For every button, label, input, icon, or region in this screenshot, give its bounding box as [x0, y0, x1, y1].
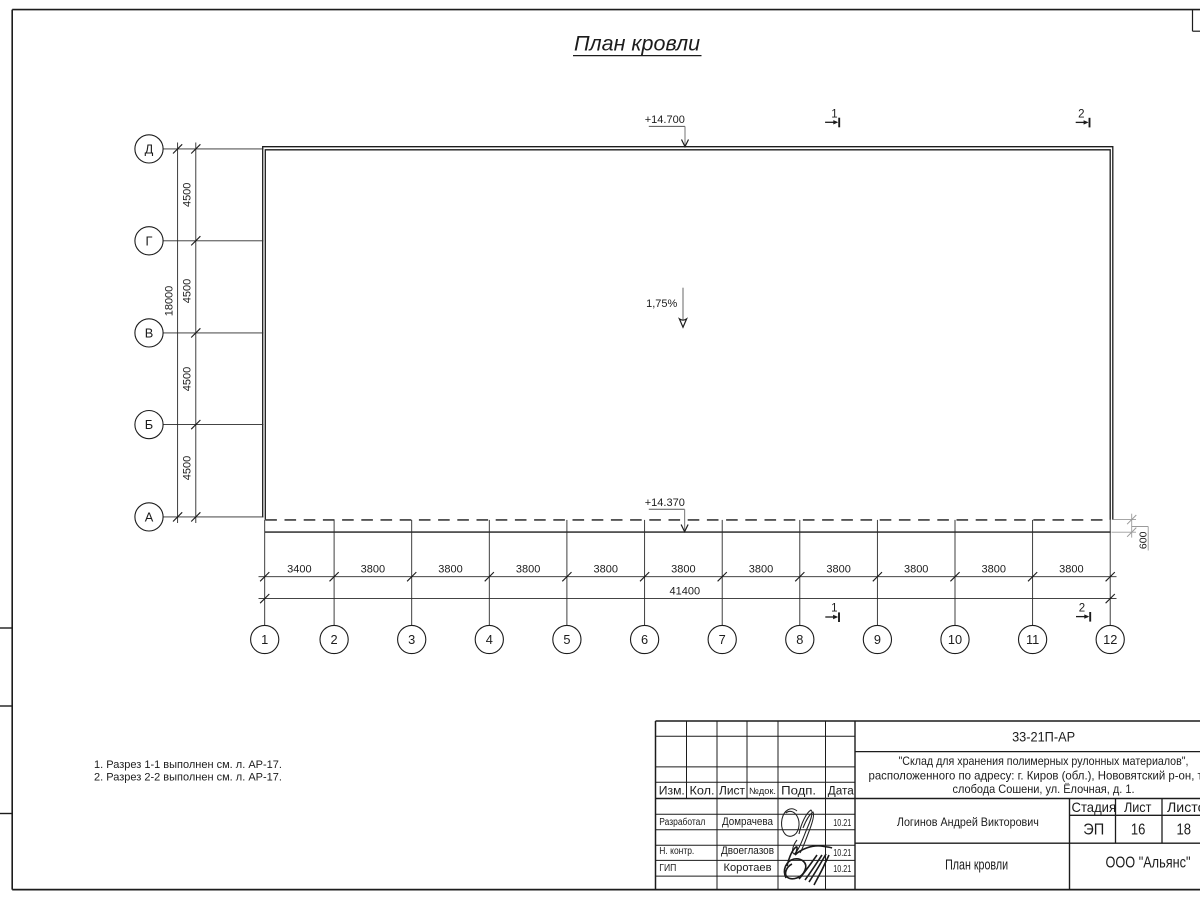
- svg-text:Подп.: Подп.: [781, 786, 816, 798]
- svg-text:4500: 4500: [181, 456, 193, 480]
- svg-text:3800: 3800: [594, 563, 618, 575]
- svg-text:3800: 3800: [516, 563, 540, 575]
- svg-text:Двоеглазов: Двоеглазов: [721, 845, 774, 857]
- svg-text:План кровли: План кровли: [574, 32, 700, 56]
- svg-text:3800: 3800: [361, 563, 385, 575]
- svg-text:Б: Б: [145, 417, 153, 432]
- svg-text:Стадия: Стадия: [1072, 800, 1117, 815]
- svg-text:1: 1: [831, 109, 837, 121]
- svg-text:Лист: Лист: [1124, 800, 1152, 815]
- svg-text:33-21П-АР: 33-21П-АР: [1012, 729, 1075, 745]
- svg-text:Логинов Андрей Викторович: Логинов Андрей Викторович: [897, 816, 1039, 829]
- svg-text:18: 18: [1176, 822, 1191, 839]
- svg-text:Г: Г: [146, 233, 153, 248]
- svg-text:+14.700: +14.700: [645, 114, 685, 126]
- svg-text:слобода Сошени, ул. Ёлочная, д: слобода Сошени, ул. Ёлочная, д. 1.: [953, 783, 1135, 796]
- svg-text:План кровли: План кровли: [945, 858, 1008, 874]
- svg-text:ЭП: ЭП: [1083, 822, 1104, 839]
- svg-text:ООО "Альянс": ООО "Альянс": [1106, 855, 1191, 872]
- svg-text:3800: 3800: [671, 563, 695, 575]
- svg-text:12: 12: [1103, 632, 1117, 647]
- svg-text:18000: 18000: [164, 286, 176, 317]
- svg-text:6: 6: [641, 632, 648, 647]
- svg-text:1,75%: 1,75%: [646, 298, 677, 310]
- svg-text:2: 2: [1078, 109, 1084, 121]
- svg-text:4500: 4500: [181, 367, 193, 391]
- svg-text:600: 600: [1137, 531, 1149, 549]
- svg-text:Д: Д: [145, 141, 154, 156]
- svg-text:Кол.: Кол.: [690, 786, 715, 798]
- svg-text:1: 1: [261, 632, 268, 647]
- svg-text:Н. контр.: Н. контр.: [659, 846, 694, 857]
- svg-text:"Склад для хранения полимерных: "Склад для хранения полимерных рулонных …: [899, 755, 1189, 768]
- svg-text:10.21: 10.21: [833, 818, 851, 829]
- svg-text:Дата: Дата: [828, 786, 855, 798]
- svg-text:4500: 4500: [181, 279, 193, 303]
- svg-text:4500: 4500: [181, 183, 193, 207]
- svg-text:Коротаев: Коротаев: [724, 862, 772, 874]
- svg-text:Листов: Листов: [1167, 800, 1200, 815]
- svg-text:1. Разрез 1-1 выполнен см. л.: 1. Разрез 1-1 выполнен см. л. АР-17.: [94, 759, 282, 771]
- svg-text:11: 11: [1026, 632, 1039, 647]
- svg-text:41400: 41400: [670, 585, 701, 597]
- svg-text:3800: 3800: [438, 563, 462, 575]
- svg-text:2: 2: [1079, 602, 1085, 614]
- svg-text:3: 3: [408, 632, 415, 647]
- svg-text:9: 9: [874, 632, 881, 647]
- svg-text:10.21: 10.21: [833, 848, 851, 859]
- svg-text:ГИП: ГИП: [659, 863, 676, 874]
- svg-text:3400: 3400: [287, 563, 311, 575]
- svg-text:расположенного по адресу: г. К: расположенного по адресу: г. Киров (обл.…: [869, 769, 1200, 782]
- svg-text:8: 8: [796, 632, 803, 647]
- svg-text:+14.370: +14.370: [645, 497, 685, 509]
- svg-text:3800: 3800: [904, 563, 928, 575]
- svg-text:4: 4: [486, 632, 493, 647]
- svg-text:10: 10: [948, 632, 962, 647]
- svg-text:16: 16: [1131, 822, 1146, 839]
- svg-text:Изм.: Изм.: [659, 786, 685, 798]
- svg-text:3800: 3800: [982, 563, 1006, 575]
- svg-text:Разработал: Разработал: [659, 817, 705, 828]
- svg-text:2. Разрез 2-2 выполнен см. л.: 2. Разрез 2-2 выполнен см. л. АР-17.: [94, 771, 282, 783]
- svg-text:1: 1: [831, 602, 837, 614]
- svg-text:7: 7: [719, 632, 726, 647]
- svg-text:5: 5: [563, 632, 570, 647]
- svg-text:А: А: [145, 509, 154, 524]
- svg-text:3800: 3800: [749, 563, 773, 575]
- svg-text:Лист: Лист: [719, 786, 746, 798]
- svg-text:3800: 3800: [826, 563, 850, 575]
- svg-text:2: 2: [331, 632, 338, 647]
- svg-text:3800: 3800: [1059, 563, 1083, 575]
- svg-text:Домрачева: Домрачева: [722, 816, 773, 828]
- svg-text:В: В: [145, 325, 154, 340]
- svg-text:10.21: 10.21: [833, 864, 851, 875]
- svg-text:№док.: №док.: [749, 786, 776, 796]
